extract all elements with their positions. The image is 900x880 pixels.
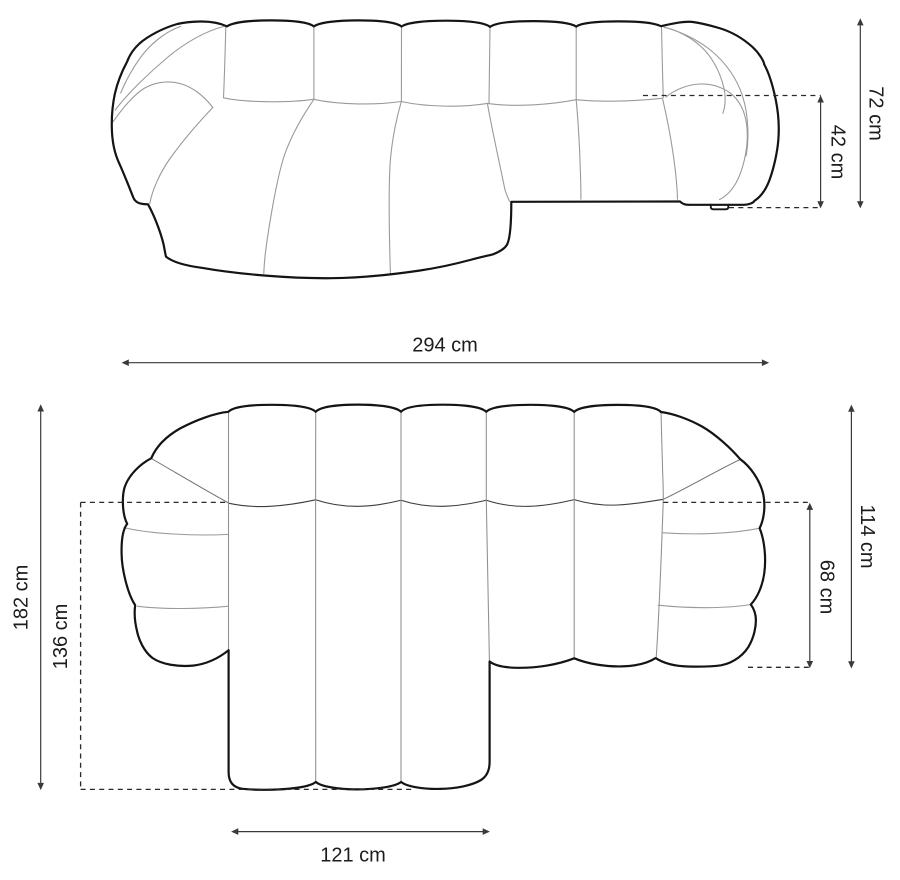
svg-text:294 cm: 294 cm — [412, 335, 478, 357]
svg-text:121 cm: 121 cm — [320, 845, 386, 867]
svg-text:114 cm: 114 cm — [856, 504, 878, 568]
svg-text:68 cm: 68 cm — [816, 560, 838, 614]
svg-text:72 cm: 72 cm — [865, 86, 887, 140]
svg-text:136 cm: 136 cm — [50, 604, 72, 670]
svg-text:42 cm: 42 cm — [827, 125, 849, 179]
svg-text:182 cm: 182 cm — [11, 565, 33, 631]
